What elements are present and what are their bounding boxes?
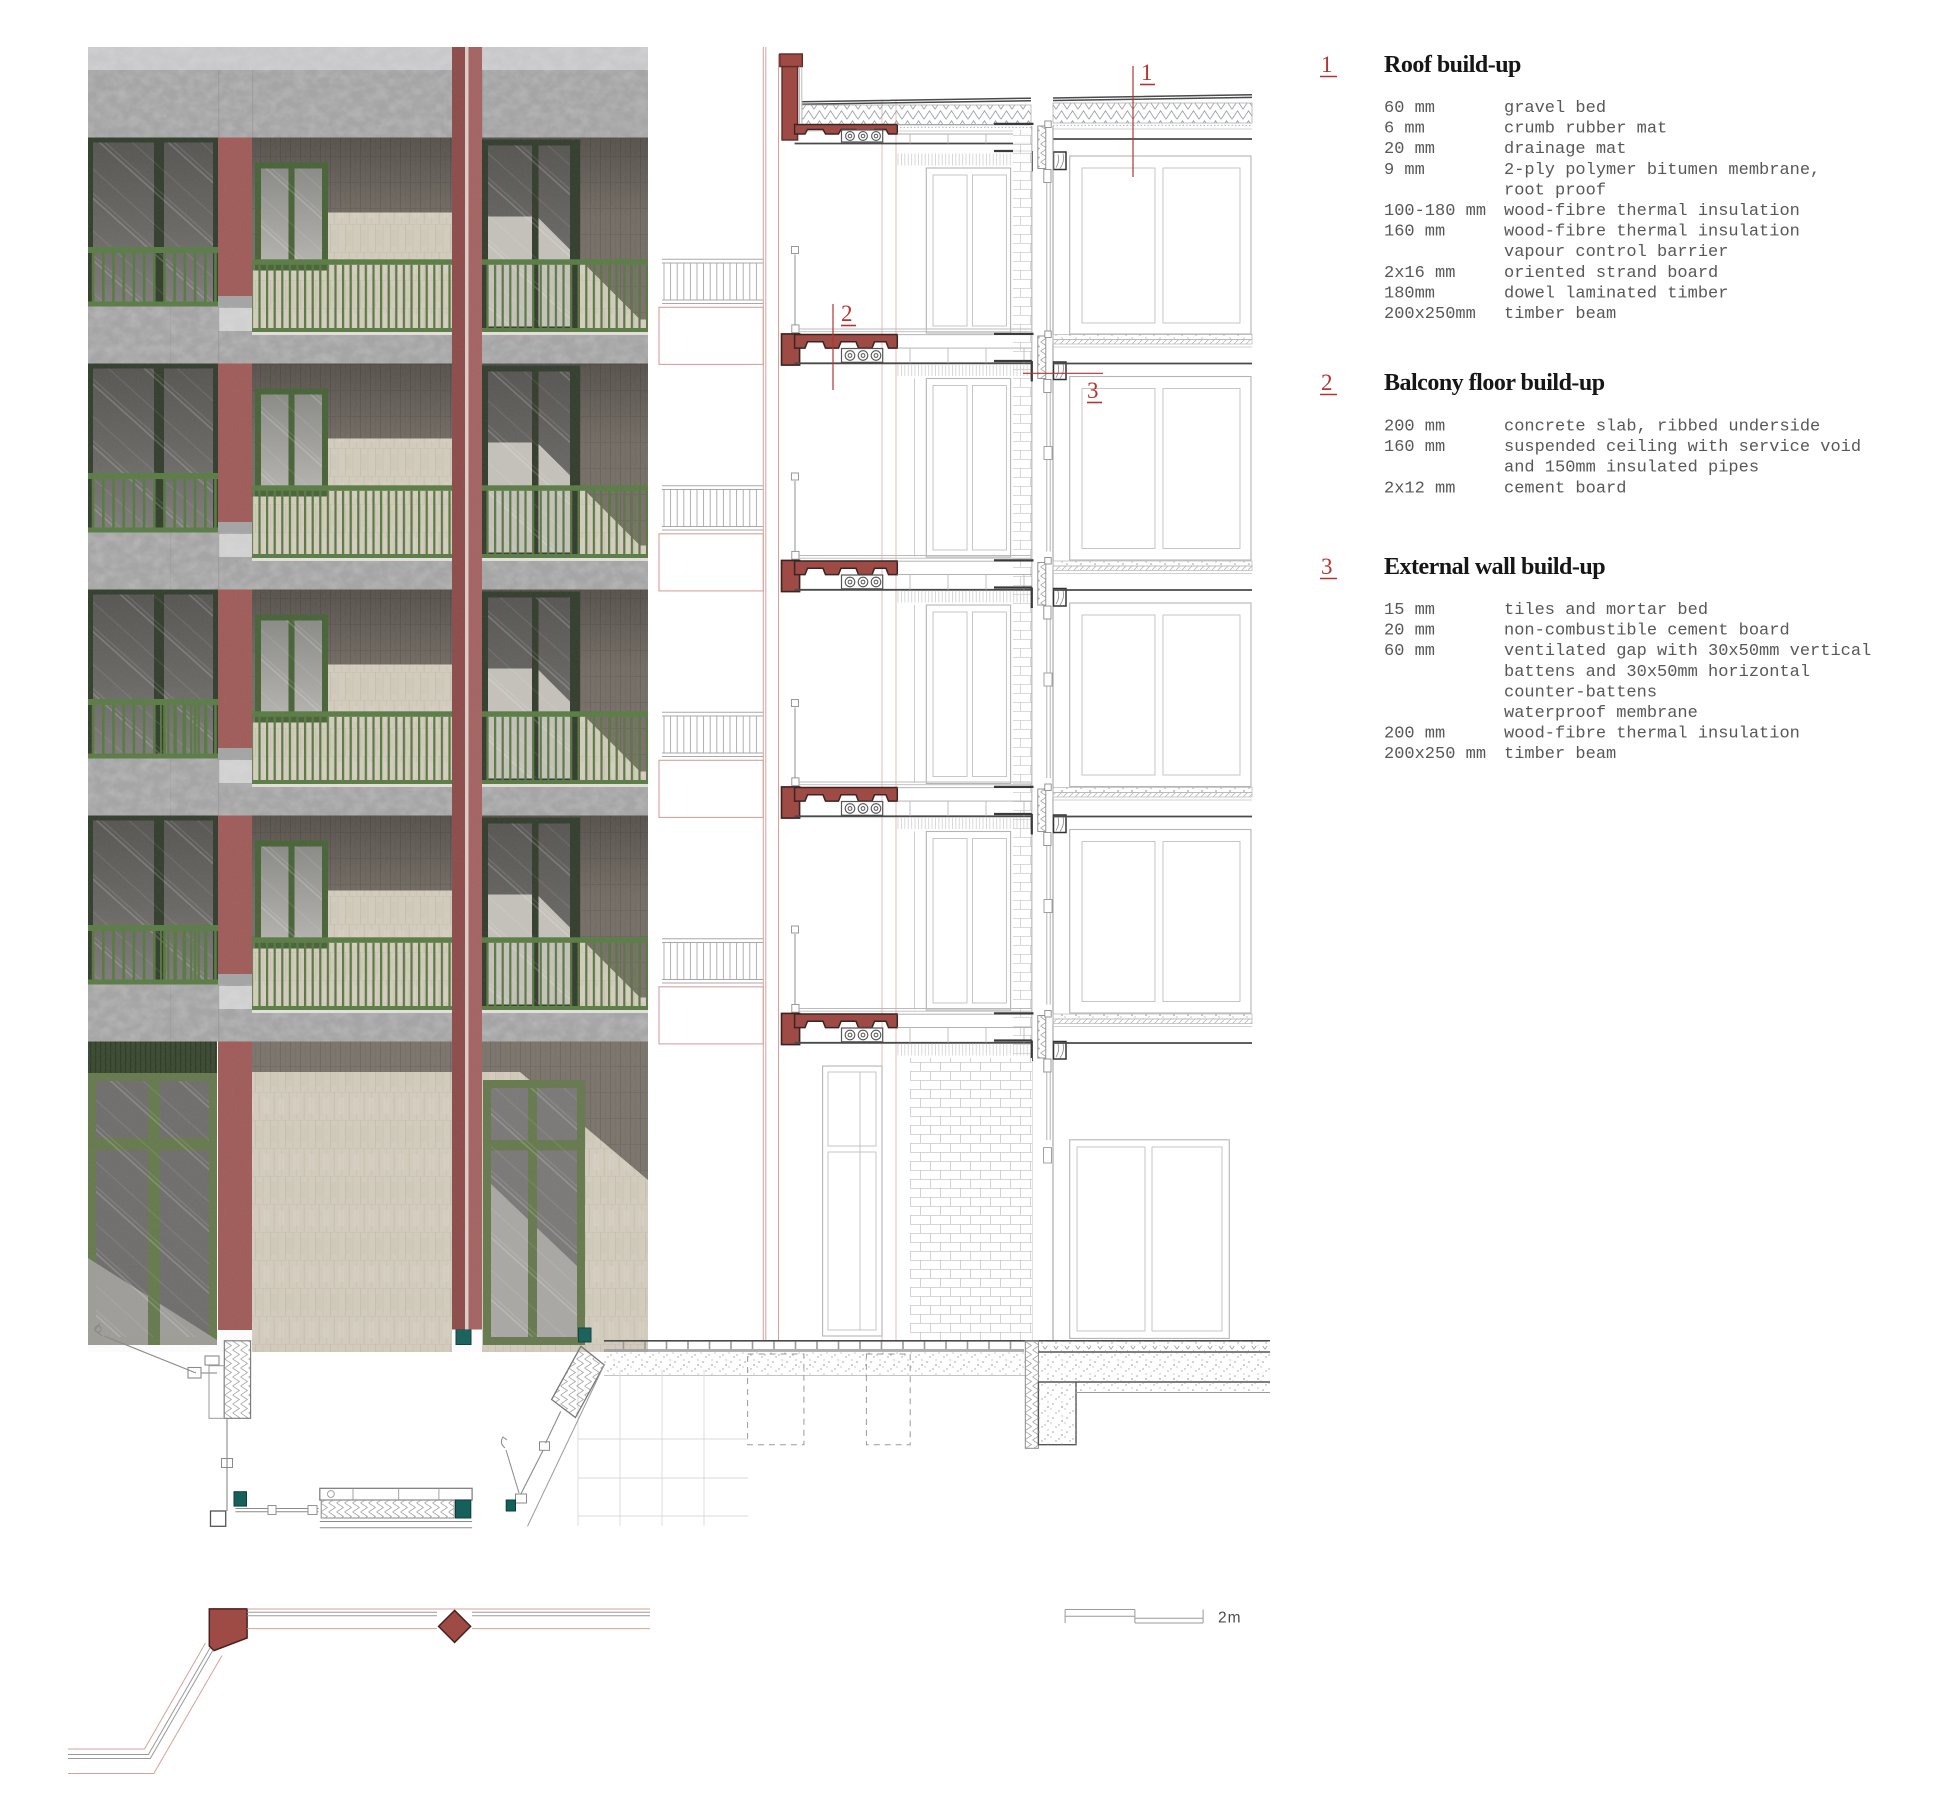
- svg-text:concrete slab, ribbed undersid: concrete slab, ribbed underside: [1504, 418, 1820, 437]
- svg-text:2x16 mm: 2x16 mm: [1384, 264, 1455, 283]
- svg-text:External wall build-up: External wall build-up: [1384, 554, 1605, 580]
- svg-text:2: 2: [841, 301, 853, 326]
- svg-text:15 mm: 15 mm: [1384, 601, 1435, 620]
- svg-text:timber beam: timber beam: [1504, 305, 1616, 324]
- svg-text:drainage mat: drainage mat: [1504, 140, 1626, 159]
- svg-text:3: 3: [1087, 378, 1099, 403]
- svg-text:200x250 mm: 200x250 mm: [1384, 745, 1486, 764]
- svg-text:20 mm: 20 mm: [1384, 140, 1435, 159]
- svg-text:vapour control barrier: vapour control barrier: [1504, 243, 1728, 262]
- svg-text:non-combustible cement board: non-combustible cement board: [1504, 622, 1790, 641]
- svg-text:battens and 30x50mm horizontal: battens and 30x50mm horizontal: [1504, 663, 1810, 682]
- svg-text:2x12 mm: 2x12 mm: [1384, 479, 1455, 498]
- svg-text:root proof: root proof: [1504, 181, 1606, 200]
- svg-text:2-ply polymer bitumen membrane: 2-ply polymer bitumen membrane,: [1504, 161, 1820, 180]
- svg-text:3: 3: [1321, 554, 1333, 579]
- svg-text:dowel laminated timber: dowel laminated timber: [1504, 284, 1728, 303]
- svg-text:waterproof membrane: waterproof membrane: [1504, 704, 1698, 723]
- svg-text:200 mm: 200 mm: [1384, 418, 1445, 437]
- svg-text:100-180 mm: 100-180 mm: [1384, 202, 1486, 221]
- svg-text:20 mm: 20 mm: [1384, 622, 1435, 641]
- svg-text:timber beam: timber beam: [1504, 745, 1616, 764]
- svg-text:tiles and mortar bed: tiles and mortar bed: [1504, 601, 1708, 620]
- svg-text:wood-fibre thermal insulation: wood-fibre thermal insulation: [1504, 202, 1800, 221]
- svg-text:1: 1: [1321, 52, 1333, 77]
- svg-text:200x250mm: 200x250mm: [1384, 305, 1476, 324]
- svg-text:ventilated gap with 30x50mm ve: ventilated gap with 30x50mm vertical: [1504, 642, 1871, 661]
- svg-text:2: 2: [1321, 370, 1333, 395]
- svg-text:200 mm: 200 mm: [1384, 725, 1445, 744]
- svg-text:oriented strand board: oriented strand board: [1504, 264, 1718, 283]
- svg-text:wood-fibre thermal insulation: wood-fibre thermal insulation: [1504, 725, 1800, 744]
- svg-text:160 mm: 160 mm: [1384, 223, 1445, 242]
- svg-text:1: 1: [1141, 60, 1153, 85]
- svg-text:wood-fibre thermal insulation: wood-fibre thermal insulation: [1504, 223, 1800, 242]
- svg-text:counter-battens: counter-battens: [1504, 683, 1657, 702]
- svg-text:suspended ceiling with service: suspended ceiling with service void: [1504, 438, 1861, 457]
- svg-text:crumb rubber mat: crumb rubber mat: [1504, 120, 1667, 139]
- svg-text:6 mm: 6 mm: [1384, 120, 1425, 139]
- svg-text:60 mm: 60 mm: [1384, 99, 1435, 118]
- svg-text:cement board: cement board: [1504, 479, 1626, 498]
- svg-text:Roof build-up: Roof build-up: [1384, 52, 1521, 78]
- svg-text:Balcony floor build-up: Balcony floor build-up: [1384, 370, 1605, 396]
- svg-text:2m: 2m: [1218, 1610, 1242, 1627]
- svg-text:9 mm: 9 mm: [1384, 161, 1425, 180]
- svg-text:60 mm: 60 mm: [1384, 642, 1435, 661]
- svg-text:160 mm: 160 mm: [1384, 438, 1445, 457]
- svg-text:gravel bed: gravel bed: [1504, 99, 1606, 118]
- svg-text:and 150mm insulated pipes: and 150mm insulated pipes: [1504, 459, 1759, 478]
- svg-text:180mm: 180mm: [1384, 284, 1435, 303]
